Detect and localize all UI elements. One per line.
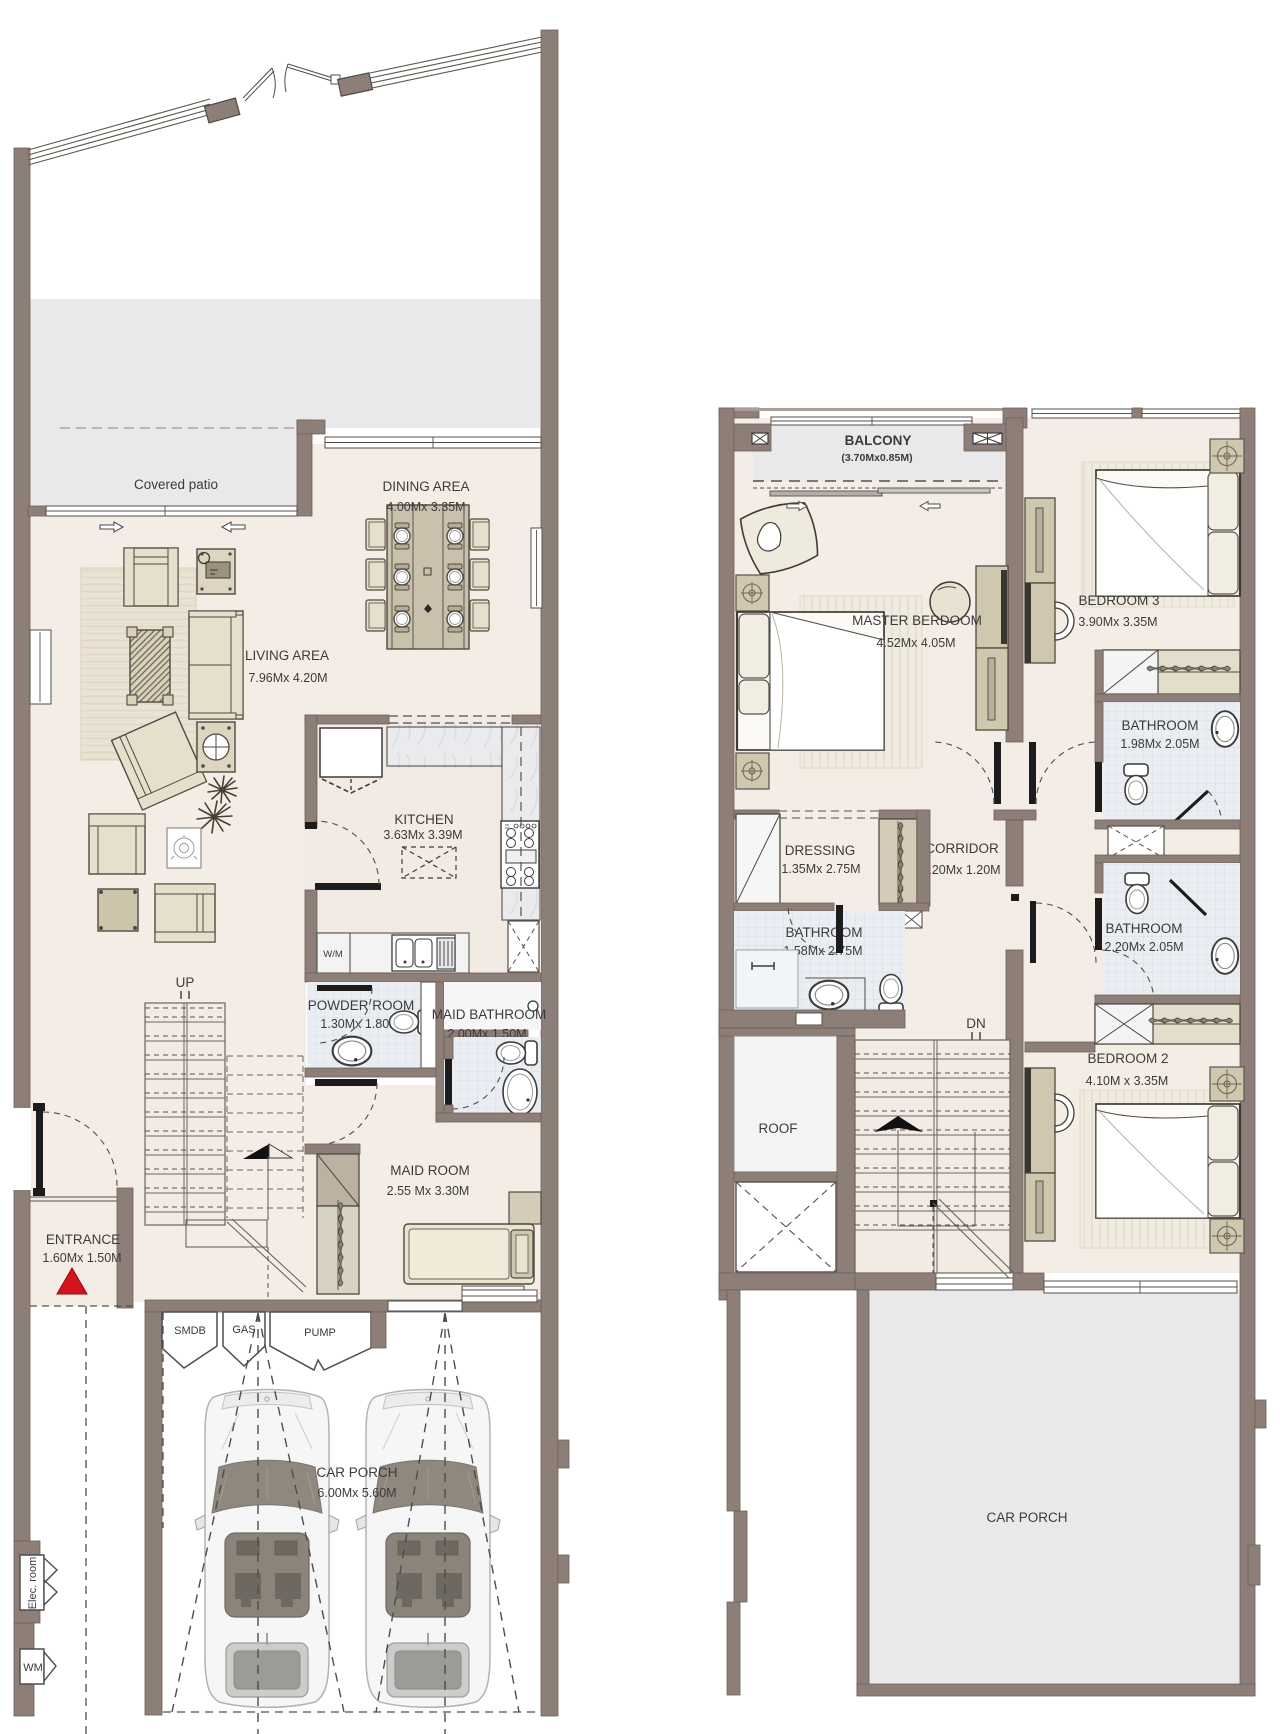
svg-text:SMDB: SMDB — [174, 1325, 206, 1337]
svg-text:GAS: GAS — [232, 1324, 255, 1336]
svg-text:1.35Mx 2.75M: 1.35Mx 2.75M — [781, 862, 860, 876]
svg-text:1.20Mx 1.20M: 1.20Mx 1.20M — [921, 863, 1000, 877]
svg-text:CAR PORCH: CAR PORCH — [316, 1465, 397, 1480]
svg-text:MASTER BERDOOM: MASTER BERDOOM — [852, 613, 982, 628]
svg-text:PUMP: PUMP — [304, 1327, 336, 1339]
svg-text:W/M: W/M — [323, 949, 343, 960]
svg-text:BALCONY: BALCONY — [845, 433, 912, 448]
svg-text:1.30Mx 1.80M: 1.30Mx 1.80M — [320, 1017, 399, 1031]
svg-text:BATHROOM: BATHROOM — [1122, 718, 1199, 733]
svg-text:Elec. room: Elec. room — [27, 1557, 39, 1610]
svg-text:7.96Mx 4.20M: 7.96Mx 4.20M — [248, 671, 327, 685]
svg-text:2.55 Mx 3.30M: 2.55 Mx 3.30M — [387, 1184, 470, 1198]
svg-text:LIVING AREA: LIVING AREA — [245, 648, 329, 663]
svg-text:ROOF: ROOF — [759, 1121, 798, 1136]
svg-text:3.90Mx 3.35M: 3.90Mx 3.35M — [1078, 615, 1157, 629]
svg-text:WM: WM — [23, 1662, 43, 1674]
svg-text:BEDROOM 3: BEDROOM 3 — [1078, 593, 1159, 608]
svg-text:DINING AREA: DINING AREA — [382, 479, 469, 494]
svg-text:BATHROOM: BATHROOM — [1106, 921, 1183, 936]
svg-text:UP: UP — [176, 975, 195, 990]
svg-text:3.63Mx 3.39M: 3.63Mx 3.39M — [383, 828, 462, 842]
svg-text:DN: DN — [966, 1016, 986, 1031]
svg-text:CAR PORCH: CAR PORCH — [986, 1510, 1067, 1525]
svg-text:BEDROOM 2: BEDROOM 2 — [1087, 1051, 1168, 1066]
svg-text:4.10M x 3.35M: 4.10M x 3.35M — [1086, 1074, 1169, 1088]
svg-text:6.00Mx 5.60M: 6.00Mx 5.60M — [317, 1486, 396, 1500]
svg-text:(3.70Mx0.85M): (3.70Mx0.85M) — [841, 452, 912, 464]
svg-text:4.52Mx 4.05M: 4.52Mx 4.05M — [876, 636, 955, 650]
svg-text:1.98Mx 2.05M: 1.98Mx 2.05M — [1120, 737, 1199, 751]
svg-text:POWDER ROOM: POWDER ROOM — [308, 998, 415, 1013]
svg-text:MAID ROOM: MAID ROOM — [390, 1163, 470, 1178]
svg-text:ENTRANCE: ENTRANCE — [46, 1232, 120, 1247]
svg-text:KITCHEN: KITCHEN — [394, 812, 453, 827]
svg-text:Covered patio: Covered patio — [134, 477, 218, 492]
svg-text:DRESSING: DRESSING — [785, 843, 856, 858]
svg-text:1.60Mx 1.50M: 1.60Mx 1.50M — [42, 1251, 121, 1265]
svg-text:4.00Mx 3.35M: 4.00Mx 3.35M — [386, 500, 465, 514]
svg-text:CORRIDOR: CORRIDOR — [925, 841, 999, 856]
